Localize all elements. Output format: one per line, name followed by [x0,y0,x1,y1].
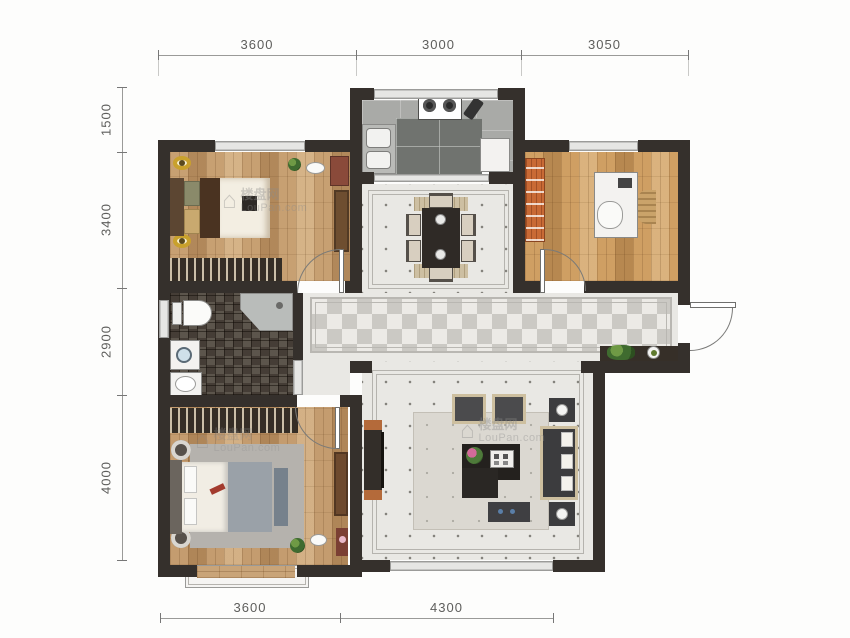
dining-chair [406,240,421,262]
bathroom-sliding-door [293,360,303,395]
watermark-cn: 楼盘网 [479,418,546,432]
watermark-en: LouPan.com [241,202,308,214]
sink-oval-icon [175,376,196,392]
tv-icon [381,432,384,488]
plant-icon [290,538,305,553]
wall-master-top [158,395,297,407]
tray-item [503,461,508,465]
dim-top-2: 3000 [356,37,521,52]
fridge [480,138,510,172]
dinner-plate-icon [435,214,446,225]
console-plant-icon [607,345,635,360]
watermark: ⌂ 楼盘网 LouPan.com [195,428,280,454]
wall-living-bottom [553,560,605,572]
wall-bedroom2-top [158,140,215,152]
dresser [330,156,349,186]
tray-item [503,454,508,459]
wall-living-bottom [362,560,390,572]
master-pillow [184,466,197,493]
kitchen-counter [396,118,482,174]
wall-kitchen-bottom [489,172,525,184]
wall-stub-living-right [581,361,605,373]
sofa-pillow [561,454,573,469]
tall-cabinet [334,190,349,252]
watermark-cn: 楼盘网 [241,188,308,202]
watermark: ⌂ 楼盘网 LouPan.com [460,418,545,444]
round-mat-icon [171,440,191,460]
watermark-en: LouPan.com [479,432,546,444]
wall-master-right [350,407,362,577]
dim-left-2: 3400 [98,152,114,288]
toilet-bowl [183,300,212,326]
watermark-en: LouPan.com [214,442,281,454]
house-logo-icon: ⌂ [195,431,210,451]
wardrobe [170,258,282,281]
vanity-chair [310,534,327,546]
wall-study-top [513,140,569,152]
tray-item [494,454,499,459]
table-flowers-icon [432,228,450,246]
decor-bowl-center [651,350,657,356]
house-logo-icon: ⌂ [460,421,475,441]
wall-stub-living-left [350,361,372,373]
wall-center-vertical [350,88,362,293]
dining-chair [461,214,476,236]
speaker-icon [364,490,382,500]
window-living [390,561,553,571]
wall-kitchen-right [513,88,525,293]
nightstand-lamp-icon [173,234,191,248]
speaker-icon [364,420,382,430]
floor-plan-canvas: 3600 3000 3050 1500 3400 2900 4000 3600 … [0,0,850,638]
sofa-pillow [561,432,573,447]
bench-knob-icon [510,509,515,514]
table-lamp-icon [556,508,568,520]
wall-bedroom2-bottom [158,281,297,293]
wall-master-bottom [158,565,197,577]
nightstand-lamp-icon [173,156,191,170]
bookshelf [525,158,545,242]
dining-chair [461,240,476,262]
plant-icon [288,158,301,171]
dim-left-4: 4000 [98,395,114,560]
wall-master-bottom [297,565,362,577]
master-headboard [170,460,182,534]
kitchen-sliding-door [374,174,489,182]
dining-chair [406,214,421,236]
laptop-icon [618,178,632,188]
bed-end-bench [274,468,288,526]
washer-drum-icon [176,347,192,363]
sink-basin [366,128,391,148]
coffee-table-flowers-icon [466,447,483,464]
dim-bottom-2: 4300 [340,600,553,615]
wall-step [598,361,690,373]
stove-burner-icon [443,99,456,112]
shower-drain-icon [276,302,283,309]
wall-study-bottom [584,281,690,293]
sofa-pillow [561,476,573,491]
house-logo-icon: ⌂ [222,191,237,211]
master-bed-blanket [228,462,272,532]
dim-top-3: 3050 [521,37,688,52]
vanity-chair [306,162,325,174]
dim-top-1: 3600 [158,37,356,52]
toilet-tank [172,302,182,325]
bed2-headboard [170,178,184,236]
watermark: ⌂ 楼盘网 LouPan.com [222,188,307,214]
coffee-table-ext [462,468,498,498]
wall-kitchen-bottom [362,172,374,184]
bench-knob-icon [498,509,503,514]
bed2-duvet-dark [200,178,220,238]
study-rug [638,190,656,224]
master-pillow [184,498,197,525]
entry-door-arc-icon [690,308,733,351]
tv-console [364,420,382,500]
wall-bedroom2-bottom [345,281,362,293]
dim-left-1: 1500 [98,87,114,152]
wall-bathroom-right [293,293,303,360]
dim-left-3: 2900 [98,288,114,395]
media-bench [488,502,530,522]
table-lamp-icon [556,404,568,416]
wall-study-bottom [525,281,540,293]
dim-bottom-1: 3600 [160,600,340,615]
window-kitchen [374,89,498,99]
bed2-pillow [184,209,200,234]
window-bedroom2 [215,141,305,151]
desk-chair [597,201,623,229]
window-study [569,141,638,151]
wall-living-right [593,361,605,572]
tray-item [494,461,499,465]
vanity-mirror-icon [339,536,346,543]
dining-chair [429,193,453,208]
bed2-pillow [184,181,200,206]
wall-kitchen-top [350,88,374,100]
dining-chair [429,267,453,282]
tall-cabinet [334,452,348,516]
sink-basin [366,151,391,169]
wall-master-top [340,395,362,407]
window-bathroom [159,300,169,338]
wall-exterior-left [158,140,170,577]
bay-window-sill [197,566,295,578]
stove-burner-icon [423,99,436,112]
watermark-cn: 楼盘网 [214,428,281,442]
dinner-plate-icon [435,249,446,260]
serving-tray [490,450,514,468]
